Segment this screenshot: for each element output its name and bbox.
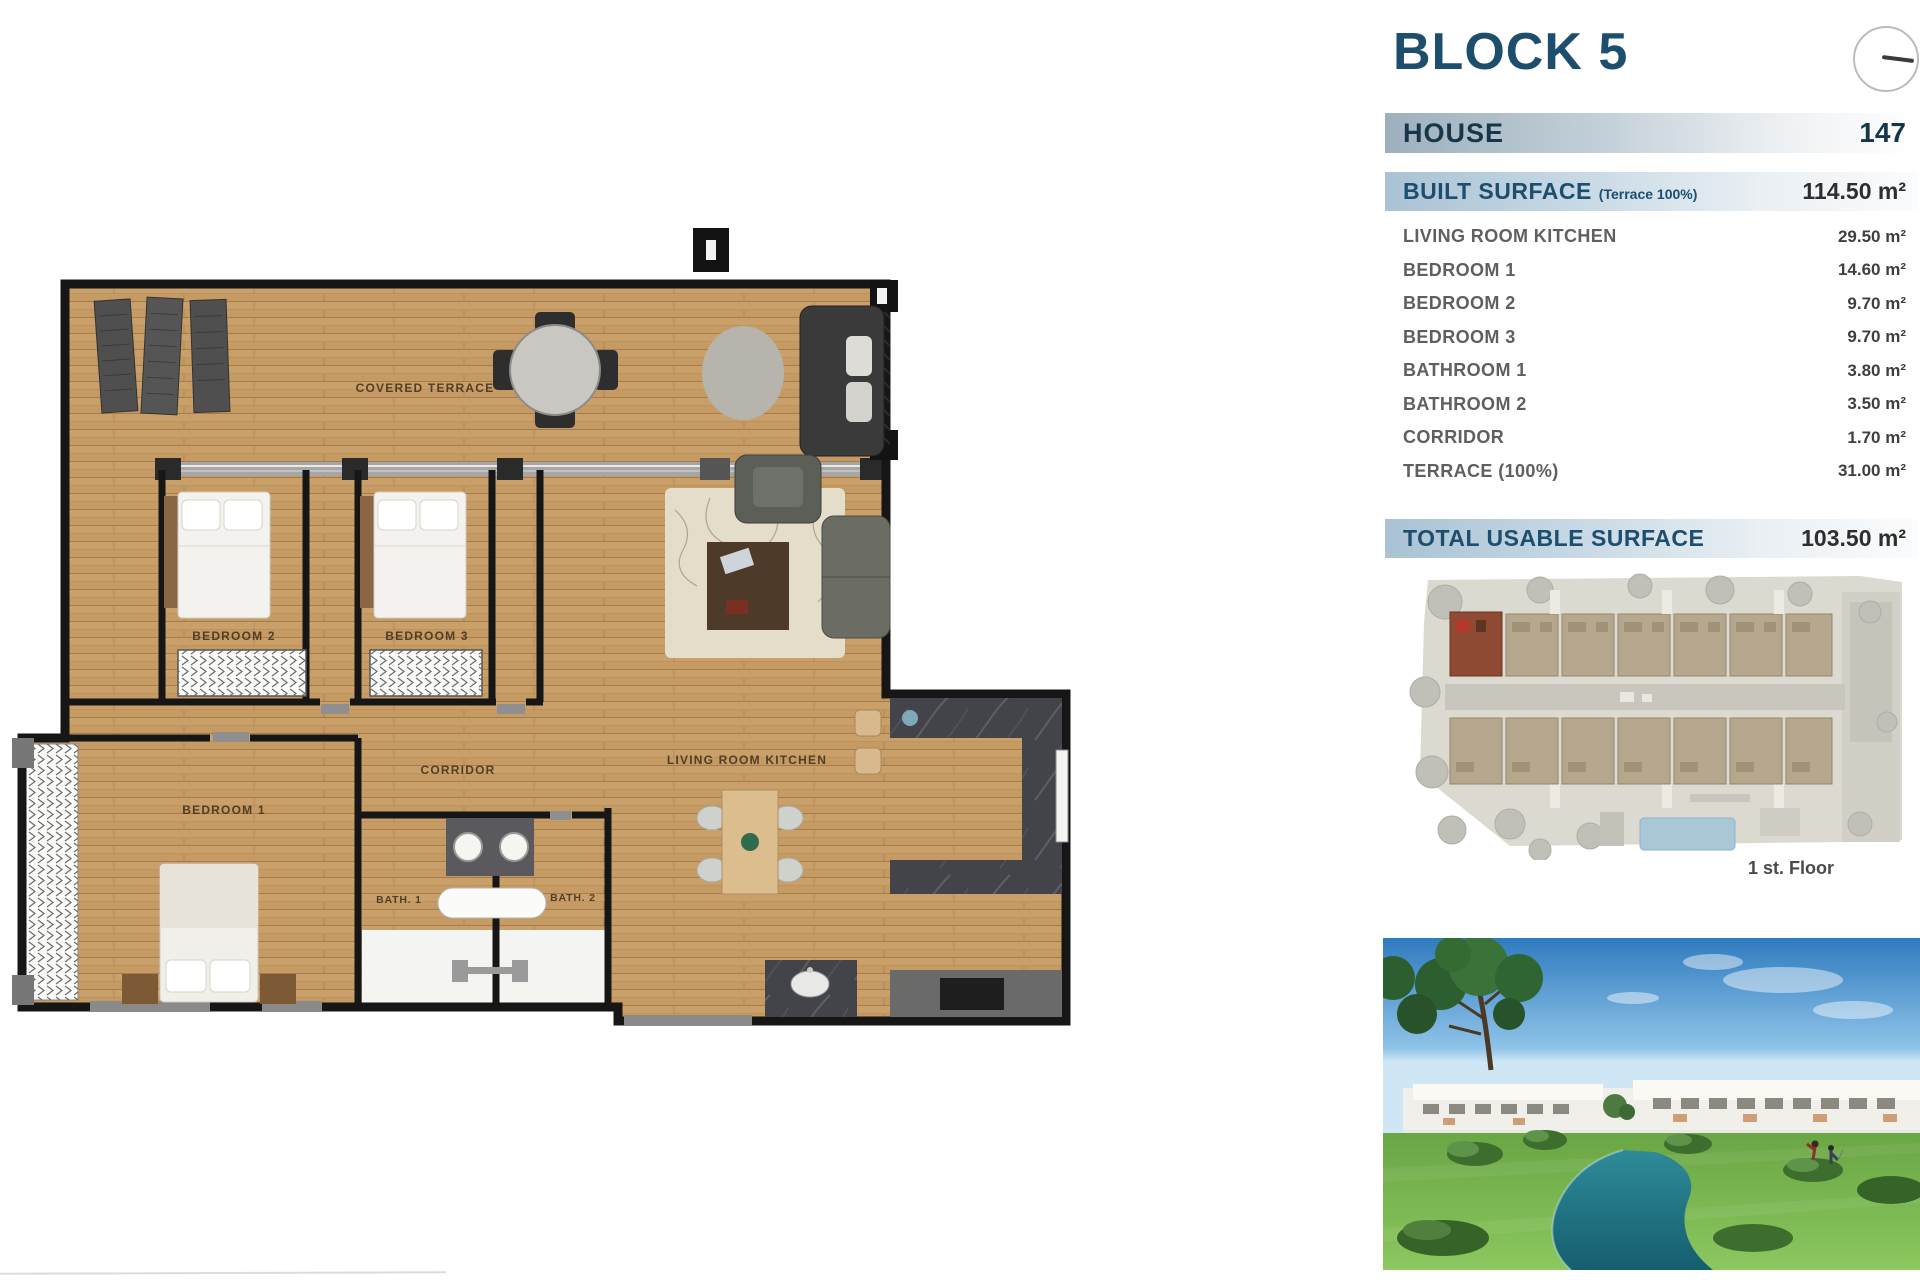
- row-label: BEDROOM 1: [1403, 260, 1516, 281]
- total-value: 103.50 m²: [1801, 525, 1906, 552]
- row-value: 9.70 m²: [1847, 294, 1906, 314]
- block-title: BLOCK 5: [1393, 22, 1628, 82]
- built-surface-label: BUILT SURFACE: [1403, 178, 1592, 204]
- label-bath2: BATH. 2: [550, 892, 596, 904]
- page-fold-line: [0, 1271, 446, 1275]
- row-value: 29.50 m²: [1838, 227, 1906, 247]
- built-surface-label-group: BUILT SURFACE(Terrace 100%): [1403, 178, 1697, 205]
- bedroom3-furniture: [360, 492, 482, 696]
- compass-needle: [1882, 55, 1914, 63]
- house-number: 147: [1859, 117, 1906, 149]
- site-units-bottom: [1450, 718, 1832, 784]
- built-surface-bar: BUILT SURFACE(Terrace 100%) 114.50 m²: [1385, 172, 1918, 211]
- floorplan: COVERED TERRACE BEDROOM 2 BEDROOM 3 BEDR…: [10, 270, 1080, 1052]
- row-label: BATHROOM 2: [1403, 394, 1527, 415]
- table-row: BEDROOM 2 9.70 m²: [1385, 287, 1918, 321]
- row-label: TERRACE (100%): [1403, 461, 1559, 482]
- table-row: BEDROOM 1 14.60 m²: [1385, 254, 1918, 288]
- label-bedroom2: BEDROOM 2: [192, 629, 275, 643]
- row-value: 3.80 m²: [1847, 361, 1906, 381]
- site-plan: [1390, 572, 1915, 860]
- row-value: 31.00 m²: [1838, 461, 1906, 481]
- terrace-pillar: [693, 228, 729, 272]
- bedroom1-balcony-shutters: [24, 744, 78, 1000]
- photo-buildings: [1403, 1080, 1920, 1134]
- table-row: TERRACE (100%) 31.00 m²: [1385, 455, 1918, 489]
- compass-icon: [1853, 26, 1919, 92]
- table-row: LIVING ROOM KITCHEN 29.50 m²: [1385, 220, 1918, 254]
- row-label: BEDROOM 3: [1403, 327, 1516, 348]
- surface-table: LIVING ROOM KITCHEN 29.50 m² BEDROOM 1 1…: [1385, 220, 1918, 488]
- row-label: BEDROOM 2: [1403, 293, 1516, 314]
- row-label: CORRIDOR: [1403, 427, 1504, 448]
- table-row: BATHROOM 2 3.50 m²: [1385, 388, 1918, 422]
- built-surface-value: 114.50 m²: [1802, 178, 1906, 205]
- row-value: 14.60 m²: [1838, 260, 1906, 280]
- row-value: 1.70 m²: [1847, 428, 1906, 448]
- row-value: 9.70 m²: [1847, 327, 1906, 347]
- page: COVERED TERRACE BEDROOM 2 BEDROOM 3 BEDR…: [0, 0, 1920, 1280]
- table-row: CORRIDOR 1.70 m²: [1385, 421, 1918, 455]
- label-corridor: CORRIDOR: [421, 763, 496, 777]
- label-covered-terrace: COVERED TERRACE: [356, 381, 495, 395]
- total-label: TOTAL USABLE SURFACE: [1403, 525, 1704, 552]
- house-bar: HOUSE 147: [1385, 113, 1918, 153]
- pillar-slot: [877, 288, 887, 304]
- row-label: LIVING ROOM KITCHEN: [1403, 226, 1617, 247]
- row-value: 3.50 m²: [1847, 394, 1906, 414]
- site-units-top: [1450, 612, 1832, 676]
- floor-label: 1 st. Floor: [1748, 858, 1834, 879]
- label-bedroom1: BEDROOM 1: [182, 803, 265, 817]
- total-usable-surface-bar: TOTAL USABLE SURFACE 103.50 m²: [1385, 519, 1918, 558]
- house-label: HOUSE: [1403, 118, 1504, 149]
- terrace-sofa: [800, 306, 890, 456]
- table-row: BEDROOM 3 9.70 m²: [1385, 321, 1918, 355]
- building-photo: [1383, 938, 1920, 1270]
- built-surface-note: (Terrace 100%): [1599, 186, 1698, 202]
- sun-loungers: [94, 297, 230, 415]
- label-bedroom3: BEDROOM 3: [385, 629, 468, 643]
- terrace-rug: [702, 326, 784, 420]
- row-label: BATHROOM 1: [1403, 360, 1527, 381]
- label-living-room-kitchen: LIVING ROOM KITCHEN: [667, 753, 827, 767]
- table-row: BATHROOM 1 3.80 m²: [1385, 354, 1918, 388]
- label-bath1: BATH. 1: [376, 894, 422, 906]
